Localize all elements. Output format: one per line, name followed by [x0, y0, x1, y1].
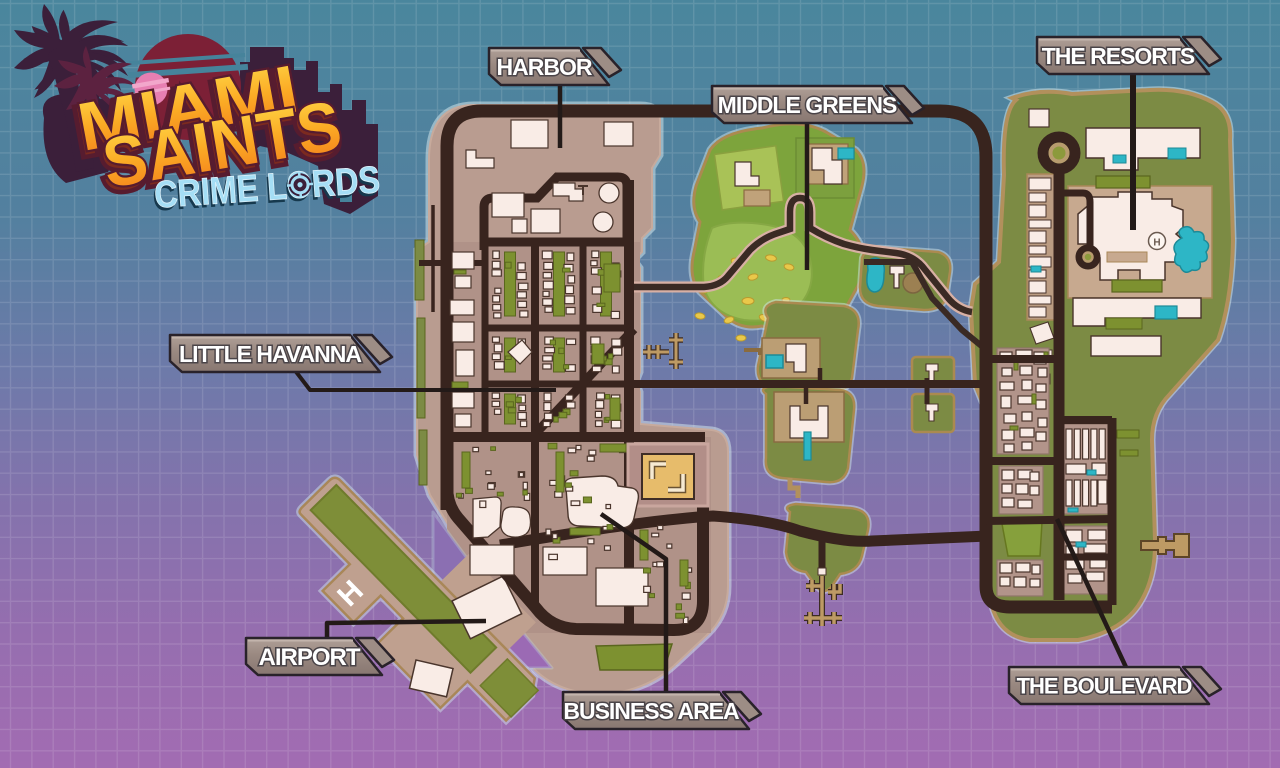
- svg-text:THE BOULEVARD: THE BOULEVARD: [1017, 673, 1192, 698]
- svg-text:H: H: [1153, 238, 1160, 249]
- svg-text:AIRPORT: AIRPORT: [259, 644, 361, 671]
- svg-text:THE RESORTS: THE RESORTS: [1042, 43, 1195, 69]
- svg-text:LITTLE HAVANNA: LITTLE HAVANNA: [179, 341, 361, 367]
- svg-text:MIDDLE GREENS: MIDDLE GREENS: [718, 92, 897, 118]
- svg-text:BUSINESS AREA: BUSINESS AREA: [563, 698, 739, 724]
- svg-text:HARBOR: HARBOR: [497, 54, 593, 80]
